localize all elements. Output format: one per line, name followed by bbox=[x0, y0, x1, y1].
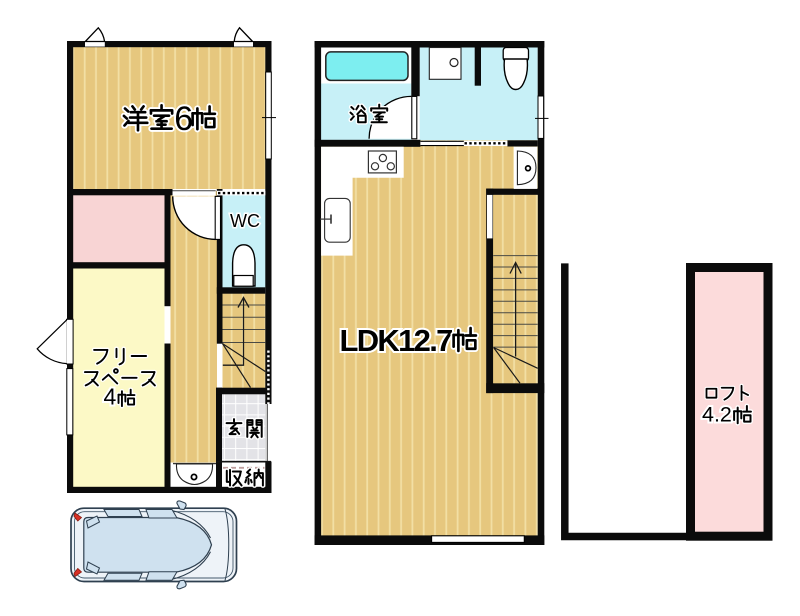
svg-text:LDK12.7: LDK12.7 bbox=[340, 323, 453, 358]
svg-text:WC: WC bbox=[230, 211, 260, 231]
svg-text:4.2: 4.2 bbox=[702, 403, 732, 427]
svg-text:6: 6 bbox=[174, 100, 193, 138]
svg-text:4: 4 bbox=[104, 384, 117, 410]
